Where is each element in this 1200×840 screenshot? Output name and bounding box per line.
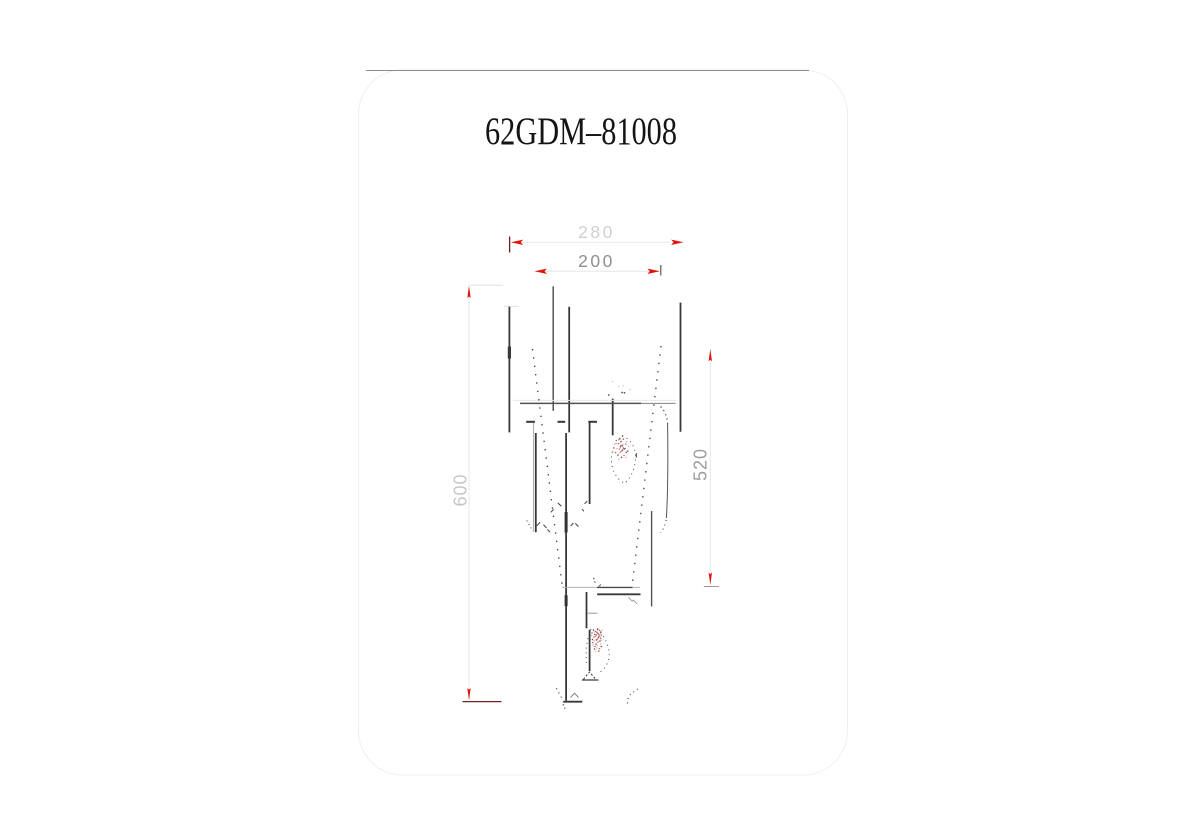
svg-text:280: 280 [578, 222, 615, 242]
svg-text:520: 520 [691, 448, 711, 481]
svg-text:200: 200 [578, 251, 615, 271]
svg-text:600: 600 [451, 473, 471, 506]
svg-text:62GDM–81008: 62GDM–81008 [485, 109, 677, 153]
